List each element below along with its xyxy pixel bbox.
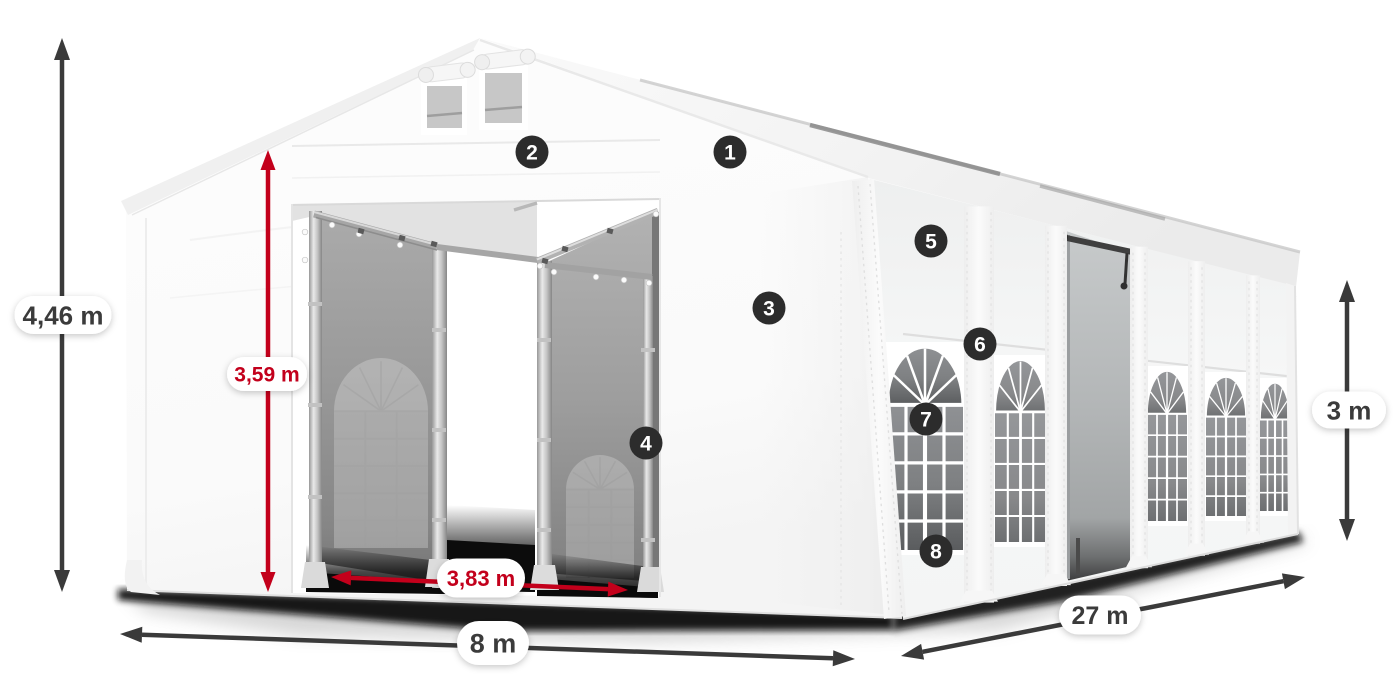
svg-text:5: 5 <box>925 231 937 254</box>
svg-text:8: 8 <box>930 541 942 564</box>
svg-text:3,59 m: 3,59 m <box>234 364 299 387</box>
svg-text:7: 7 <box>920 409 932 432</box>
svg-text:1: 1 <box>724 142 736 165</box>
svg-text:27 m: 27 m <box>1072 602 1129 630</box>
svg-text:3,83 m: 3,83 m <box>447 566 516 591</box>
svg-text:6: 6 <box>974 334 986 357</box>
svg-text:3 m: 3 m <box>1327 395 1372 425</box>
svg-text:4,46 m: 4,46 m <box>23 300 104 330</box>
svg-text:4: 4 <box>640 433 652 456</box>
svg-text:3: 3 <box>763 298 775 321</box>
svg-text:8 m: 8 m <box>470 629 517 659</box>
svg-text:2: 2 <box>526 142 538 165</box>
